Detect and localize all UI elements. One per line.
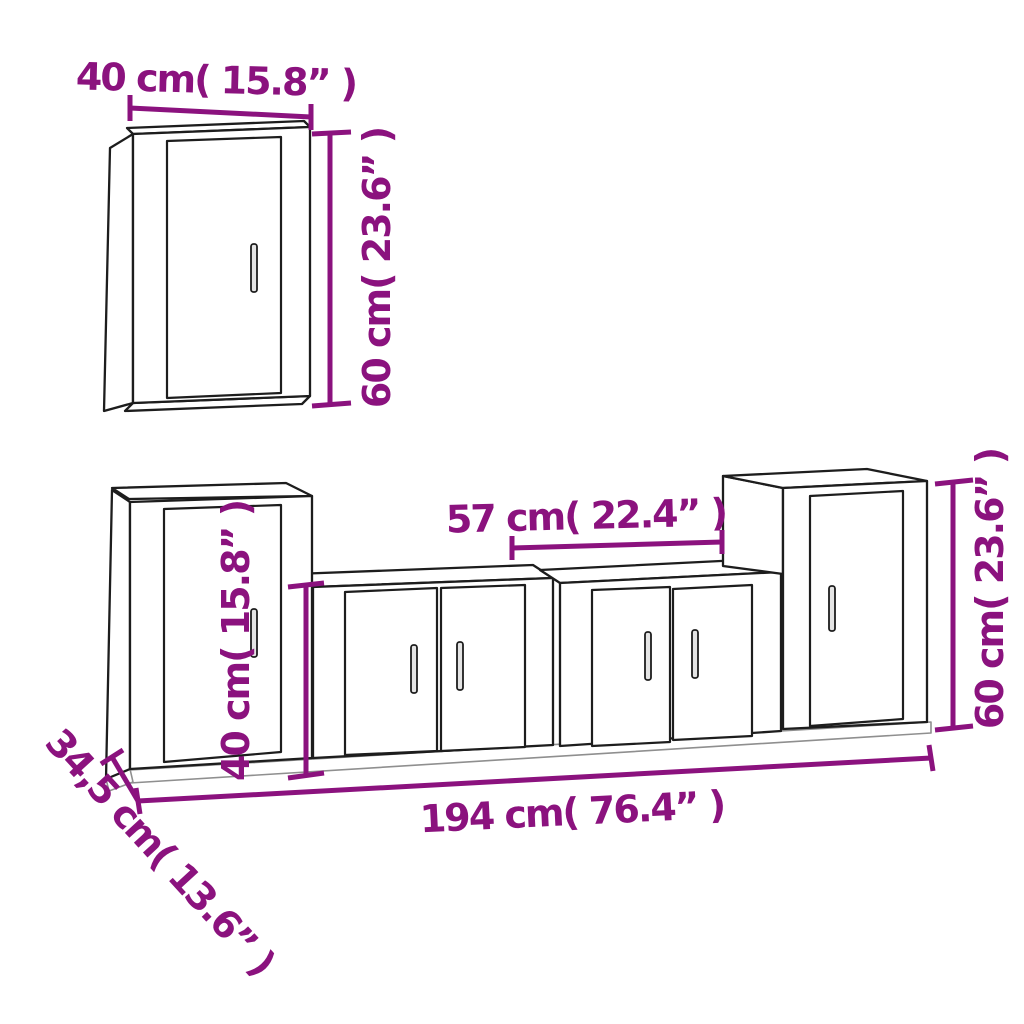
diagram-canvas: 40 cm( 15.8” ) 60 cm( 23.6” ) 40 cm( 15.…	[0, 0, 1024, 1024]
right-cabinet-side-face	[723, 476, 783, 574]
center-right-cabinet-left-door	[592, 587, 670, 746]
wall-cabinet	[104, 121, 310, 411]
dim-tick	[312, 132, 351, 134]
center-right-cabinet-left-door-handle	[645, 632, 651, 680]
wall-cabinet-door	[167, 137, 281, 398]
dimension-diagram: 40 cm( 15.8” ) 60 cm( 23.6” ) 40 cm( 15.…	[0, 0, 1024, 1024]
center-left-cabinet-right-door	[441, 585, 525, 751]
tv-cabinet-center-left	[295, 565, 553, 758]
right-cabinet-door-handle	[829, 586, 835, 631]
right-cabinet-height-label: 60 cm( 23.6” )	[968, 449, 1012, 729]
center-cabinet-width-label: 57 cm( 22.4” )	[445, 490, 726, 541]
wall-cabinet-height-label: 60 cm( 23.6” )	[355, 128, 399, 408]
dim-tick	[312, 403, 351, 406]
center-left-cabinet-left-door	[345, 588, 437, 755]
center-right-cabinet-right-door	[673, 585, 752, 740]
wall-cabinet-side-face	[104, 134, 133, 411]
center-left-cabinet-right-door-handle	[457, 642, 463, 690]
wall-cabinet-width-label: 40 cm( 15.8” )	[75, 54, 356, 105]
tall-cabinet-left	[106, 483, 312, 779]
left-cabinet-height-label: 40 cm( 15.8” )	[214, 501, 258, 781]
right-cabinet-door	[810, 491, 903, 726]
center-left-cabinet-left-door-handle	[411, 645, 417, 693]
tv-cabinet-center-right	[540, 559, 781, 746]
wall-cabinet-door-handle	[251, 244, 257, 292]
center-right-cabinet-right-door-handle	[692, 630, 698, 678]
